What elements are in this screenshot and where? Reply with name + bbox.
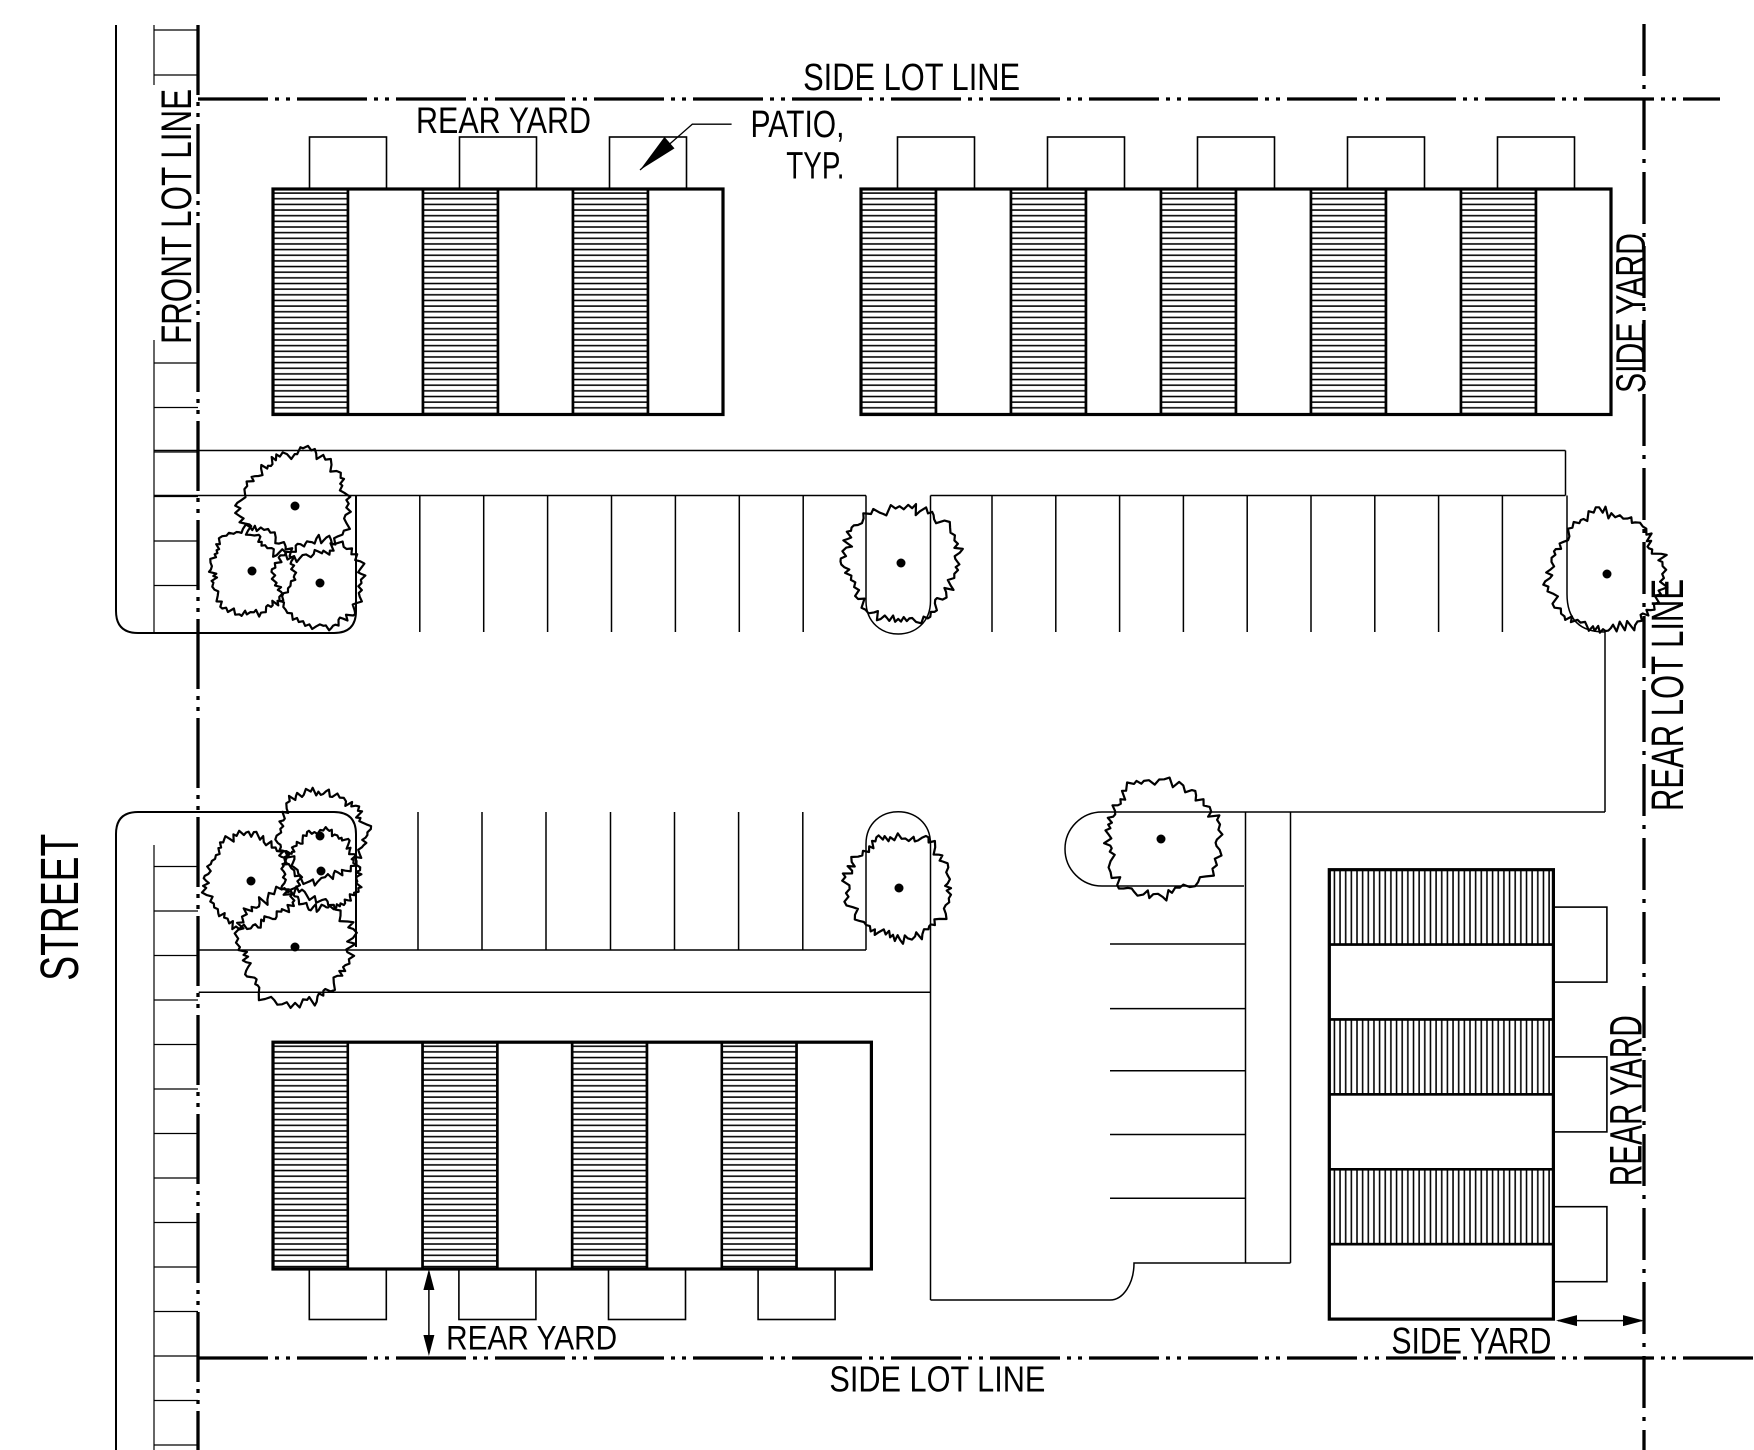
svg-text:FRONT LOT LINE: FRONT LOT LINE <box>153 89 201 344</box>
svg-text:PATIO,: PATIO, <box>751 104 845 146</box>
svg-text:REAR YARD: REAR YARD <box>446 1320 617 1358</box>
svg-text:STREET: STREET <box>30 834 90 981</box>
svg-text:SIDE LOT LINE: SIDE LOT LINE <box>829 1360 1045 1400</box>
svg-text:TYP.: TYP. <box>786 146 844 188</box>
svg-text:REAR YARD: REAR YARD <box>1600 1015 1651 1186</box>
svg-text:SIDE YARD: SIDE YARD <box>1607 233 1654 393</box>
svg-text:SIDE YARD: SIDE YARD <box>1391 1320 1551 1361</box>
svg-text:SIDE LOT LINE: SIDE LOT LINE <box>803 56 1020 99</box>
svg-text:REAR LOT LINE: REAR LOT LINE <box>1642 579 1693 811</box>
svg-text:REAR YARD: REAR YARD <box>416 99 591 141</box>
